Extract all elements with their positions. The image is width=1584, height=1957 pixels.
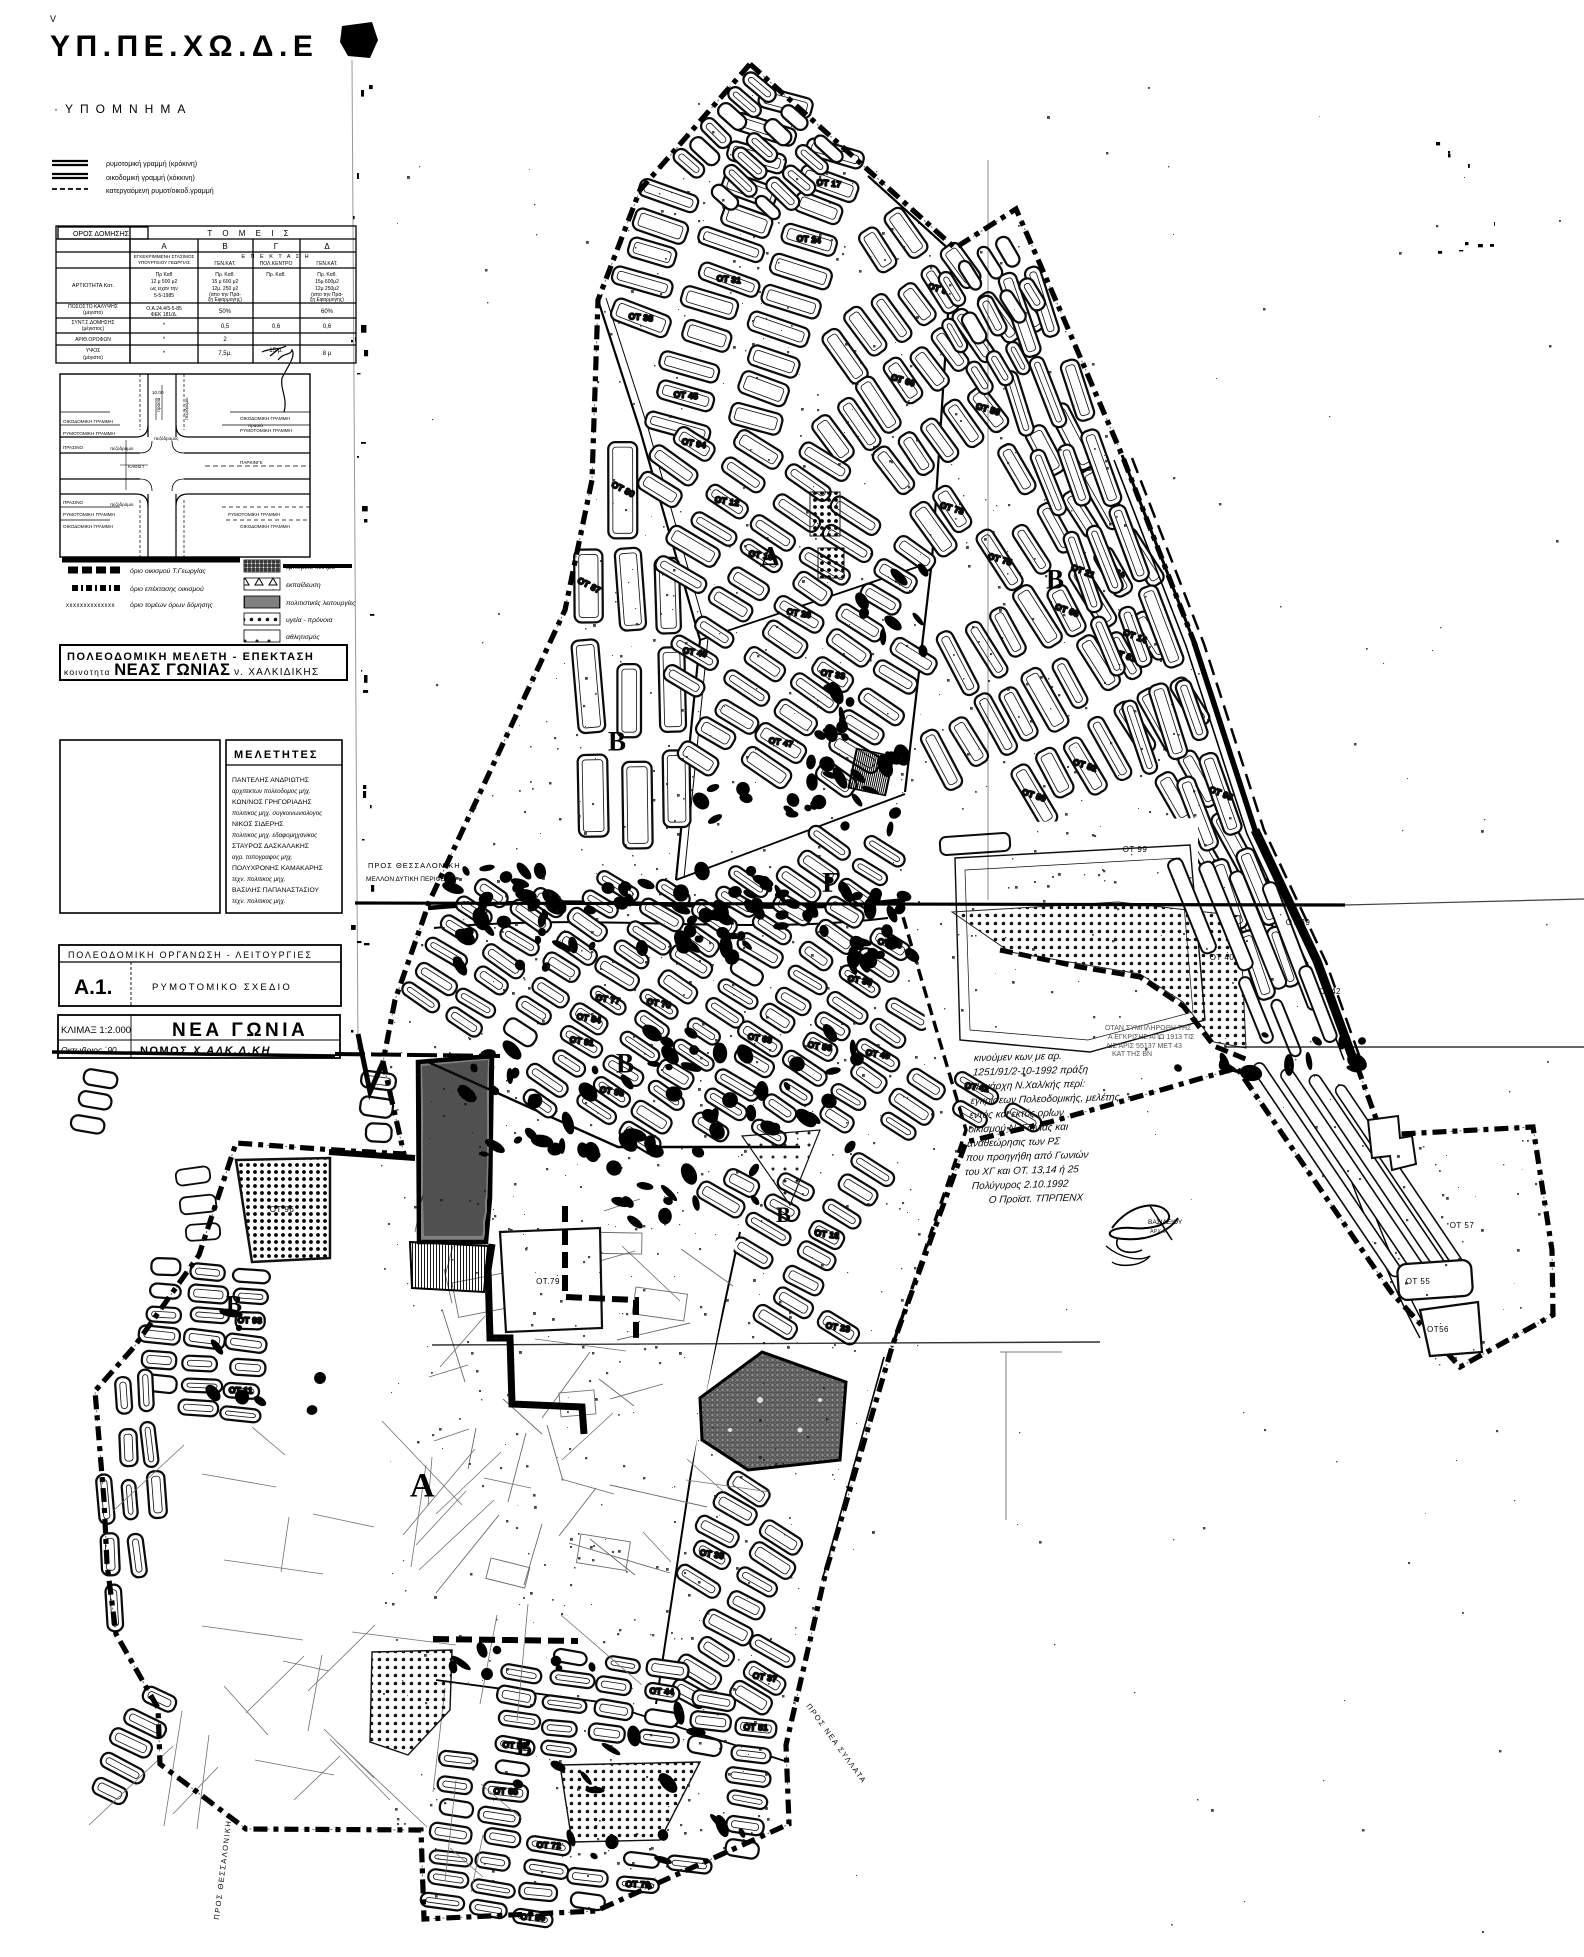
svg-text:Β: Β xyxy=(776,1202,791,1227)
svg-text:Πρ Καθ: Πρ Καθ xyxy=(156,272,173,278)
svg-text:ΚΩΝ/ΝΟΣ ΓΡΗΓΟΡΙΑΔΗΣ: ΚΩΝ/ΝΟΣ ΓΡΗΓΟΡΙΑΔΗΣ xyxy=(232,799,312,806)
svg-text:Δ: Δ xyxy=(762,541,779,571)
svg-text:ως ειχαν την: ως ειχαν την xyxy=(150,286,178,292)
svg-text:ΓΕΝ.ΚΑΤ.: ΓΕΝ.ΚΑΤ. xyxy=(316,261,337,267)
svg-text:Πρ. Καθ.: Πρ. Καθ. xyxy=(317,272,337,278)
svg-text:50%: 50% xyxy=(219,309,232,315)
svg-text:ΠΡΑΣΙΝΟ: ΠΡΑΣΙΝΟ xyxy=(63,500,84,505)
svg-text:ΥΠΟΥΡΓΕΙΟΥ ΓΕΩΡΓΙΑΣ: ΥΠΟΥΡΓΕΙΟΥ ΓΕΩΡΓΙΑΣ xyxy=(138,260,190,265)
svg-text:ΓΕΝ.ΚΑΤ.: ΓΕΝ.ΚΑΤ. xyxy=(214,261,235,267)
svg-text:(μέγιστος): (μέγιστος) xyxy=(82,325,105,332)
svg-text:ΥΨΟΣ: ΥΨΟΣ xyxy=(86,348,101,354)
svg-text:Ε Π Ε Κ Τ Α Σ Η: Ε Π Ε Κ Τ Α Σ Η xyxy=(241,254,310,260)
svg-text:εντός και εκτός ορίων: εντός και εκτός ορίων xyxy=(969,1107,1064,1121)
svg-text:ΥΠ.ΠΕ.ΧΩ.Δ.Ε: ΥΠ.ΠΕ.ΧΩ.Δ.Ε xyxy=(50,30,318,63)
svg-text:πεζοδρόμιο: πεζοδρόμιο xyxy=(184,397,189,420)
svg-text:ΟΤΑΝ ΣΥΜΠΛΗΡΩΘΗ ΤΗΣ: ΟΤΑΝ ΣΥΜΠΛΗΡΩΘΗ ΤΗΣ xyxy=(1105,1025,1192,1032)
svg-text:10.00: 10.00 xyxy=(152,390,164,395)
svg-text:πεζοδρόμιο: πεζοδρόμιο xyxy=(110,445,134,452)
svg-text:ΒΑΣΙΛΗΣ ΠΑΠΑΝΑΣΤΑΣΙΟΥ: ΒΑΣΙΛΗΣ ΠΑΠΑΝΑΣΤΑΣΙΟΥ xyxy=(232,887,320,894)
svg-text:15μ 600μ2: 15μ 600μ2 xyxy=(315,279,339,285)
svg-text:Β: Β xyxy=(1046,564,1064,594)
svg-text:πολιτικος μηχ. συγκοινωνιολογο: πολιτικος μηχ. συγκοινωνιολογος xyxy=(232,810,322,817)
svg-text:ΟΤ42: ΟΤ42 xyxy=(1319,987,1341,996)
svg-text:όριο επέκτασης οικισμού: όριο επέκτασης οικισμού xyxy=(130,585,204,593)
svg-text:Α: Α xyxy=(161,242,167,251)
svg-text:ΟΤ 72: ΟΤ 72 xyxy=(537,1840,562,1850)
svg-text:πεζόδρομος: πεζόδρομος xyxy=(154,435,179,442)
svg-text:5-5-1985: 5-5-1985 xyxy=(154,293,174,299)
svg-text:Β: Β xyxy=(616,1048,634,1078)
svg-text:ΠΟΛΕΟΔΟΜΙΚΗ ΟΡΓΑΝΩΣΗ - ΛΕΙΤΟΥ: ΠΟΛΕΟΔΟΜΙΚΗ ΟΡΓΑΝΩΣΗ - ΛΕΙΤΟΥΡΓΙΕΣ xyxy=(68,950,313,960)
svg-text:ΑΡΙΘ.ΟΡΟΦΩΝ: ΑΡΙΘ.ΟΡΟΦΩΝ xyxy=(75,337,111,343)
svg-text:(μέγιστο): (μέγιστο) xyxy=(83,354,103,361)
svg-text:ΟΡΟΣ ΔΟΜΗΣΗΣ: ΟΡΟΣ ΔΟΜΗΣΗΣ xyxy=(73,231,130,238)
svg-text:ΣΤΑΥΡΟΣ ΔΑΣΚΑΛΑΚΗΣ: ΣΤΑΥΡΟΣ ΔΑΣΚΑΛΑΚΗΣ xyxy=(232,843,309,850)
svg-text:ΟΙΚΟΔΟΜΙΚΗ ΓΡΑΜΜΗ: ΟΙΚΟΔΟΜΙΚΗ ΓΡΑΜΜΗ xyxy=(240,524,290,529)
svg-text:ΡΥΜΟΤΟΜΙΚΟ ΣΧΕΔΙΟ: ΡΥΜΟΤΟΜΙΚΟ ΣΧΕΔΙΟ xyxy=(152,982,292,993)
svg-text:πολιτικος μηχ. εδαφομηχανικος: πολιτικος μηχ. εδαφομηχανικος xyxy=(232,832,317,839)
svg-text:αγρ. τοπογραφος μηχ.: αγρ. τοπογραφος μηχ. xyxy=(232,854,293,861)
svg-text:Δ: Δ xyxy=(324,242,330,251)
svg-text:ΟΙΚΟΔΟΜΙΚΗ ΓΡΑΜΜΗ: ΟΙΚΟΔΟΜΙΚΗ ΓΡΑΜΜΗ xyxy=(63,419,113,424)
svg-text:ΟΤ 65: ΟΤ 65 xyxy=(494,1787,519,1797)
svg-text:ΟΤ 39: ΟΤ 39 xyxy=(1286,918,1311,927)
svg-text:7,5μ.: 7,5μ. xyxy=(218,351,232,357)
svg-text:ΦΕΚ 181/Δ.: ΦΕΚ 181/Δ. xyxy=(151,312,178,318)
svg-text:Πρ. Καθ.: Πρ. Καθ. xyxy=(215,272,235,278)
svg-text:ΟΤ 40: ΟΤ 40 xyxy=(1210,953,1235,962)
svg-text:όριο τομέων όρων δόμησης: όριο τομέων όρων δόμησης xyxy=(130,601,214,609)
svg-text:ΚΑΤ ΤΗΣ ΒΝ: ΚΑΤ ΤΗΣ ΒΝ xyxy=(1112,1051,1152,1058)
svg-text:ΝΕΑ ΓΩΝΙΑ: ΝΕΑ ΓΩΝΙΑ xyxy=(172,1020,308,1041)
svg-text:Α ΕΓΚΡΙΣΗΣ ΑΠΟ 1913 ΤΙΣ: Α ΕΓΚΡΙΣΗΣ ΑΠΟ 1913 ΤΙΣ xyxy=(1108,1034,1195,1041)
svg-text:Γ: Γ xyxy=(822,867,840,899)
svg-text:πολιτιστικές λειτουργίες: πολιτιστικές λειτουργίες xyxy=(286,599,356,607)
svg-text:όριο οικισμού Τ.Γεωργίας: όριο οικισμού Τ.Γεωργίας xyxy=(130,567,207,575)
svg-text:Α.1.: Α.1. xyxy=(74,976,113,999)
svg-text:(μέγιστο): (μέγιστο) xyxy=(83,309,103,316)
svg-text:ΠΑΝΤΕΛΗΣ ΑΝΔΡΙΩΤΗΣ: ΠΑΝΤΕΛΗΣ ΑΝΔΡΙΩΤΗΣ xyxy=(232,777,309,784)
svg-text:ΕΓΚΕΚΡΙΜΜΕΝΗ ΣΤΑΣΙΜΟΣ: ΕΓΚΕΚΡΙΜΜΕΝΗ ΣΤΑΣΙΜΟΣ xyxy=(134,254,195,259)
svg-text:Β: Β xyxy=(222,242,227,251)
svg-text:ΟΤ.79: ΟΤ.79 xyxy=(536,1277,560,1286)
svg-text:ΠΟΛΥΧΡΟΝΗΣ ΚΑΜΑΚΑΡΗΣ: ΠΟΛΥΧΡΟΝΗΣ ΚΑΜΑΚΑΡΗΣ xyxy=(232,865,323,872)
svg-text:ΒΑΣΙΛΕΙΟΥ: ΒΑΣΙΛΕΙΟΥ xyxy=(1148,1219,1183,1226)
svg-text:Τ Ο Μ Ε Ι Σ: Τ Ο Μ Ε Ι Σ xyxy=(207,229,292,238)
svg-text:ΚΛΙΜΑΞ 1:2.000: ΚΛΙΜΑΞ 1:2.000 xyxy=(61,1025,131,1036)
svg-text:οικοδομική γραμμή (κόκκινη): οικοδομική γραμμή (κόκκινη) xyxy=(106,174,195,182)
svg-text:0,6: 0,6 xyxy=(323,324,332,330)
svg-text:ΡΥΜΟΤΟΜΙΚΗ ΓΡΑΜΜΗ: ΡΥΜΟΤΟΜΙΚΗ ΓΡΑΜΜΗ xyxy=(228,512,280,517)
svg-text:αρχιτεκτων πολεοδομος μηχ.: αρχιτεκτων πολεοδομος μηχ. xyxy=(232,788,311,795)
svg-text:ΚΑΘΙΣΤ: ΚΑΘΙΣΤ xyxy=(128,464,145,469)
svg-text:ΡΥΜΟΤΟΜΙΚΗ ΓΡΑΜΜΗ: ΡΥΜΟΤΟΜΙΚΗ ΓΡΑΜΜΗ xyxy=(63,512,115,517)
svg-text:Β: Β xyxy=(516,1735,532,1761)
svg-text:Πρ. Καθ.: Πρ. Καθ. xyxy=(266,272,286,278)
svg-text:ΟΤ56: ΟΤ56 xyxy=(1427,1325,1449,1334)
svg-text:τεχν. πολιτικος μηχ.: τεχν. πολιτικος μηχ. xyxy=(232,876,286,883)
svg-text:15 μ 600 μ2: 15 μ 600 μ2 xyxy=(212,279,239,285)
svg-text:ΟΤ 51: ΟΤ 51 xyxy=(744,1723,769,1733)
svg-text:·ΥΠΟΜΝΗΜΑ: ·ΥΠΟΜΝΗΜΑ xyxy=(54,102,192,116)
svg-text:ΠΟΛ.ΚΕΝΤΡΟ: ΠΟΛ.ΚΕΝΤΡΟ xyxy=(260,261,293,267)
svg-text:ΑΡΧ Μ: ΑΡΧ Μ xyxy=(1150,1229,1168,1235)
svg-text:ΟΙΚΟΔΟΜΙΚΗ ΓΡΑΜΜΗ: ΟΙΚΟΔΟΜΙΚΗ ΓΡΑΜΜΗ xyxy=(63,524,113,529)
svg-text:κατεργαόμενη ρυμοτ/οικοδ.γραμμ: κατεργαόμενη ρυμοτ/οικοδ.γραμμή xyxy=(106,187,214,195)
svg-text:τεχν. πολιτικος μηχ.: τεχν. πολιτικος μηχ. xyxy=(232,898,286,905)
svg-text:πρασιά: πρασιά xyxy=(156,397,161,412)
svg-text:ξη Εφαρμογης): ξη Εφαρμογης) xyxy=(310,297,344,303)
svg-text:12 μ 500 μ2: 12 μ 500 μ2 xyxy=(151,279,178,285)
svg-text:ΑΡΤΙΟΤΗΤΑ Κατ.: ΑΡΤΙΟΤΗΤΑ Κατ. xyxy=(72,283,115,289)
svg-text:ΡΥΜΟΤΟΜΙΚΗ ΓΡΑΜΜΗ: ΡΥΜΟΤΟΜΙΚΗ ΓΡΑΜΜΗ xyxy=(63,431,115,436)
svg-text:8 μ: 8 μ xyxy=(323,351,332,357)
svg-text:υγεία - πρόνοια: υγεία - πρόνοια xyxy=(286,616,333,624)
svg-text:αναθεώρησις των ΡΣ: αναθεώρησις των ΡΣ xyxy=(967,1135,1062,1149)
svg-text:ΠΡΟΣ ΘΕΣΣΑΛΟΝΙΚΗ: ΠΡΟΣ ΘΕΣΣΑΛΟΝΙΚΗ xyxy=(368,861,461,870)
svg-text:Α: Α xyxy=(410,1467,435,1504)
svg-text:ΜΕΛΕΤΗΤΕΣ: ΜΕΛΕΤΗΤΕΣ xyxy=(234,749,319,761)
svg-text:ΜΕΛΛΟΝ ΔΥΤΙΚΗ ΠΕΡΙΦΕΡ.: ΜΕΛΛΟΝ ΔΥΤΙΚΗ ΠΕΡΙΦΕΡ. xyxy=(366,876,450,883)
svg-text:Γ: Γ xyxy=(274,242,279,251)
svg-text:ρυμοτομική γραμμή (κρόκινη): ρυμοτομική γραμμή (κρόκινη) xyxy=(106,160,197,168)
svg-text:V: V xyxy=(50,14,56,24)
svg-text:ξη Εφαρμογης): ξη Εφαρμογης) xyxy=(208,297,242,303)
svg-text:ΟΤ 44: ΟΤ 44 xyxy=(650,1686,675,1696)
svg-text:πεζοδρόμιο: πεζοδρόμιο xyxy=(110,501,134,508)
svg-text:Β: Β xyxy=(226,1292,242,1318)
svg-text:60%: 60% xyxy=(321,309,334,315)
svg-text:ΟΤ 55: ΟΤ 55 xyxy=(1406,1277,1431,1286)
svg-text:κινούμεν κων με αρ.: κινούμεν κων με αρ. xyxy=(974,1050,1063,1064)
svg-text:ΟΤ 99: ΟΤ 99 xyxy=(1123,845,1148,854)
svg-text:αθλητισμός: αθλητισμός xyxy=(286,633,320,641)
svg-text:ΟΤ 79: ΟΤ 79 xyxy=(626,1880,651,1890)
svg-text:πρασιά: πρασιά xyxy=(248,422,263,428)
svg-text:ΟΙΚΟΔΟΜΙΚΗ ΓΡΑΜΜΗ: ΟΙΚΟΔΟΜΙΚΗ ΓΡΑΜΜΗ xyxy=(240,416,290,421)
svg-text:ΠΑΡΚΙΝΓΚ: ΠΑΡΚΙΝΓΚ xyxy=(240,460,264,465)
svg-text:0,6: 0,6 xyxy=(272,324,281,330)
svg-text:ΟΤ 57: ΟΤ 57 xyxy=(1450,1221,1475,1230)
svg-text:ΔΙΣ ΑΡΙΣ 55137 ΜΕΤ 43: ΔΙΣ ΑΡΙΣ 55137 ΜΕΤ 43 xyxy=(1106,1043,1182,1050)
svg-text:Β: Β xyxy=(608,726,626,756)
svg-text:ΝΙΚΟΣ ΣΙΔΕΡΗΣ: ΝΙΚΟΣ ΣΙΔΕΡΗΣ xyxy=(232,821,283,828)
svg-text:xxxxxxxxxxxxxx: xxxxxxxxxxxxxx xyxy=(66,603,115,609)
svg-text:ΠΡΑΣΙΝΟ: ΠΡΑΣΙΝΟ xyxy=(63,445,84,450)
svg-text:ΡΥΜΟΤΟΜΙΚΗ ΓΡΑΜΜΗ: ΡΥΜΟΤΟΜΙΚΗ ΓΡΑΜΜΗ xyxy=(240,428,292,433)
svg-text:0,5: 0,5 xyxy=(221,324,230,330)
svg-text:εκπαίδευση: εκπαίδευση xyxy=(286,581,321,589)
